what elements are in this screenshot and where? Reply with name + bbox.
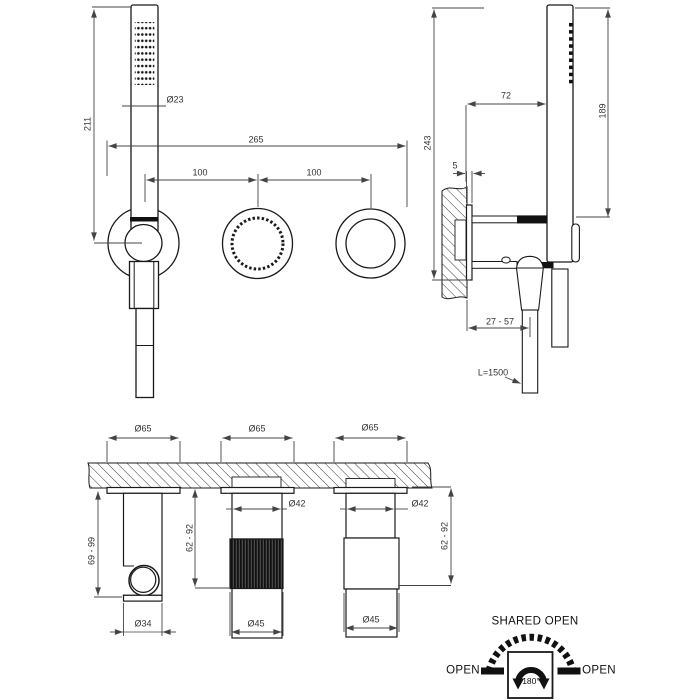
right-knob-base [346,589,397,637]
wand-handle-side [552,269,568,347]
dim-plate-thickness: 5 [452,162,457,171]
wall-recess-right [346,479,395,489]
legend-open-left-label: OPEN [446,665,480,677]
wand-band [130,217,159,222]
escutcheon-right [334,488,407,494]
drawing-linework [0,0,700,700]
dim-handle-range-right: 62 - 92 [441,522,450,550]
dim-overall-width: 265 [248,136,263,145]
dim-flange-middle: Ø65 [248,425,265,434]
dim-knob-right: Ø45 [362,616,379,625]
dim-handshower-height: 189 [599,103,608,118]
dim-spacing-right: 100 [306,169,321,178]
wall-recess-side [455,220,466,260]
technical-drawing-sheet: 211 Ø23 265 100 100 243 72 5 189 27 - 57… [0,0,700,700]
dim-knob-middle: Ø45 [247,620,264,629]
holder-cap-side [572,224,580,262]
dim-handshower-diameter: Ø23 [166,96,183,105]
outlet-dome [517,256,544,268]
side-view [442,5,579,393]
bottom-section-views [88,463,432,638]
escutcheon-left [107,488,180,494]
right-valve-body [346,493,395,538]
escutcheon-middle [221,488,294,494]
legend-bar-right [558,668,581,675]
dim-spacing-left: 100 [192,169,207,178]
wand-handle-front [136,309,154,398]
handshower-wand-side [547,5,573,262]
dim-body-middle: Ø42 [288,500,305,509]
dim-flange-left: Ø65 [134,425,151,434]
dim-handle-range-left: 69 - 99 [88,537,97,565]
legend-shared-open-label: SHARED OPEN [491,616,578,628]
rotation-legend [481,637,581,698]
dim-body-right: Ø42 [411,500,428,509]
front-view [108,5,405,398]
right-plain-knob [344,538,399,589]
wall-plate-side [467,205,473,280]
outlet-cone [517,268,544,310]
wall-recess-middle [232,477,281,488]
dim-depth-range: 27 - 57 [486,318,514,327]
dim-hose-length: L=1500 [478,369,508,378]
holder-foot [124,595,163,601]
dim-handle-range-middle: 62 - 92 [186,524,195,552]
dim-side-overall-height: 243 [424,135,433,150]
legend-open-right-label: OPEN [582,665,616,677]
middle-knurled-knob [230,539,283,589]
middle-knob-knurled-ring [232,218,283,269]
legend-rotation-angle: 180° [522,677,540,686]
spray-face-dots [135,22,155,85]
middle-knob-base [232,589,282,639]
dim-hook-diameter: Ø34 [134,620,151,629]
dim-flange-right: Ø65 [361,424,378,433]
middle-valve-body [232,493,282,539]
spray-dots-side [569,23,573,83]
diverter-button [502,257,510,263]
hook-circle-outer [129,566,159,596]
holder-arm-grip [517,215,547,223]
outlet-pipe [472,262,517,269]
dim-front-overall-height: 211 [84,117,93,131]
dim-wall-to-handshower: 72 [501,92,511,101]
